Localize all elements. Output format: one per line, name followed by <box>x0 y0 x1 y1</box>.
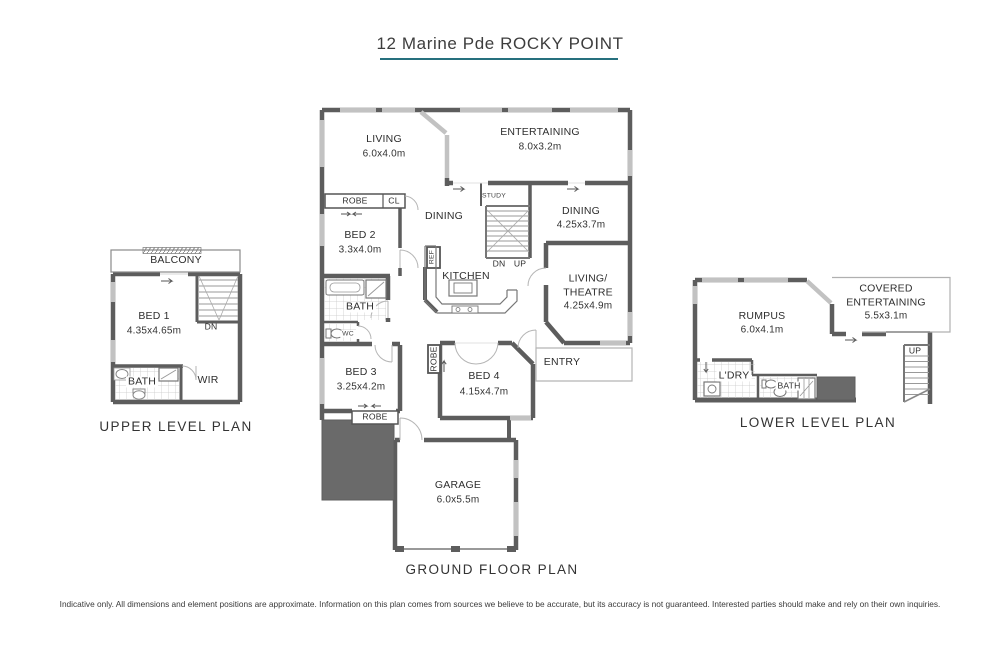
room-dims-bed3: 3.25x4.2m <box>337 381 386 394</box>
plan-title-ground: GROUND FLOOR PLAN <box>405 561 578 579</box>
room-label-living-theatre: LIVING/ THEATRE <box>563 272 613 299</box>
room-dims-entertaining: 8.0x3.2m <box>519 141 562 154</box>
stair-label-up-lower: UP <box>909 345 921 356</box>
room-dims-bed2: 3.3x4.0m <box>339 244 382 257</box>
room-label-entertaining: ENTERTAINING <box>500 126 580 140</box>
ground-stairs <box>486 206 530 258</box>
room-dims-rumpus: 6.0x4.1m <box>741 324 784 337</box>
room-dims-bed1: 4.35x4.65m <box>127 325 181 338</box>
upper-arrows <box>161 279 172 284</box>
ground-garage-door <box>395 546 516 552</box>
room-dims-garage: 6.0x5.5m <box>437 494 480 507</box>
lower-solid-mass <box>817 377 855 400</box>
room-label-ldry: L'DRY <box>717 370 752 381</box>
room-dims-living: 6.0x4.0m <box>363 148 406 161</box>
room-label-entry: ENTRY <box>544 356 580 370</box>
room-dims-living-theatre: 4.25x4.9m <box>564 300 613 313</box>
room-label-garage: GARAGE <box>435 479 481 493</box>
room-label-wir: WIR <box>197 374 218 388</box>
label-study: STUDY <box>482 193 506 202</box>
plan-title-lower: LOWER LEVEL PLAN <box>740 414 896 432</box>
label-robe-bed3: ROBE <box>362 411 387 422</box>
room-label-bed2: BED 2 <box>344 229 375 243</box>
title-underline <box>380 58 618 60</box>
room-label-bed3: BED 3 <box>345 366 376 380</box>
floorplan-page: 12 Marine Pde ROCKY POINT BALCONY BED 1 … <box>0 0 1000 666</box>
ground-solid-mass <box>322 420 394 500</box>
label-ref: REF <box>429 250 438 264</box>
room-label-bed1: BED 1 <box>138 310 169 324</box>
disclaimer-text: Indicative only. All dimensions and elem… <box>60 599 941 609</box>
room-label-living: LIVING <box>366 133 402 147</box>
label-cl: CL <box>388 195 399 206</box>
upper-doors <box>182 366 196 380</box>
stair-label-dn-ground: DN <box>493 258 506 269</box>
page-title: 12 Marine Pde ROCKY POINT <box>376 34 623 54</box>
label-robe-bed2: ROBE <box>342 195 367 206</box>
stair-label-dn-upper: DN <box>205 321 218 332</box>
label-robe-bed4: ROBE <box>428 346 439 371</box>
room-dims-covered-entertaining: 5.5x3.1m <box>865 310 908 323</box>
room-label-kitchen: KITCHEN <box>442 270 490 284</box>
room-label-dining1: DINING <box>425 210 463 224</box>
stair-label-up-ground: UP <box>514 258 526 269</box>
plan-title-upper: UPPER LEVEL PLAN <box>99 418 252 436</box>
upper-stairs <box>199 276 238 320</box>
room-label-dining2: DINING <box>562 205 600 219</box>
room-label-bath-ground: BATH <box>344 301 376 312</box>
room-label-bed4: BED 4 <box>468 370 499 384</box>
label-wc: WC <box>340 330 356 337</box>
room-dims-bed4: 4.15x4.7m <box>460 386 509 399</box>
room-label-bath-lower: BATH <box>775 381 802 390</box>
room-label-covered-entertaining: COVERED ENTERTAINING <box>846 282 926 309</box>
room-label-rumpus: RUMPUS <box>739 310 786 324</box>
lower-plan-windows <box>695 280 831 304</box>
room-label-balcony: BALCONY <box>150 254 202 268</box>
room-label-bath-upper: BATH <box>126 376 158 387</box>
room-dims-dining2: 4.25x3.7m <box>557 219 606 232</box>
